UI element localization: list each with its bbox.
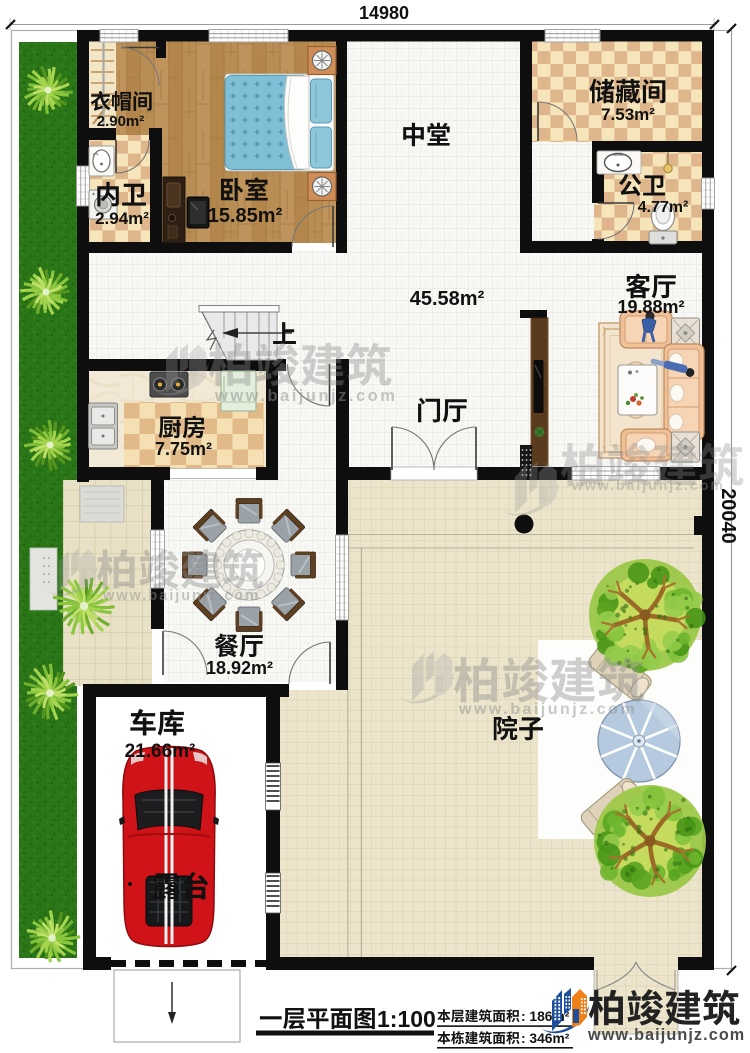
svg-text:4.77m²: 4.77m² <box>638 199 689 216</box>
svg-text:21.66m²: 21.66m² <box>125 741 196 762</box>
svg-text:20040: 20040 <box>717 488 739 544</box>
svg-text:: 346m²: : 346m² <box>521 1031 570 1046</box>
svg-text:: 186m²: : 186m² <box>521 1009 570 1024</box>
svg-text:7.53m²: 7.53m² <box>601 105 655 124</box>
svg-text:www.baijunjz.com: www.baijunjz.com <box>587 1026 745 1044</box>
svg-text:45.58m²: 45.58m² <box>410 288 485 310</box>
svg-text:2.90m²: 2.90m² <box>97 113 145 130</box>
svg-text:19.88m²: 19.88m² <box>617 297 684 317</box>
svg-text:15.85m²: 15.85m² <box>208 205 283 227</box>
svg-text:www.baijunjz.com: www.baijunjz.com <box>214 387 397 405</box>
svg-text:14980: 14980 <box>359 3 409 23</box>
svg-text:1:100: 1:100 <box>377 1006 436 1032</box>
svg-text:www.baijunjz.com: www.baijunjz.com <box>458 701 637 718</box>
svg-text:18.92m²: 18.92m² <box>206 658 273 678</box>
svg-text:2.94m²: 2.94m² <box>95 209 149 228</box>
svg-text:www.baijunjz.com: www.baijunjz.com <box>571 477 725 493</box>
svg-text:www.baijunjz.com: www.baijunjz.com <box>102 588 260 604</box>
svg-text:7.75m²: 7.75m² <box>155 439 212 459</box>
